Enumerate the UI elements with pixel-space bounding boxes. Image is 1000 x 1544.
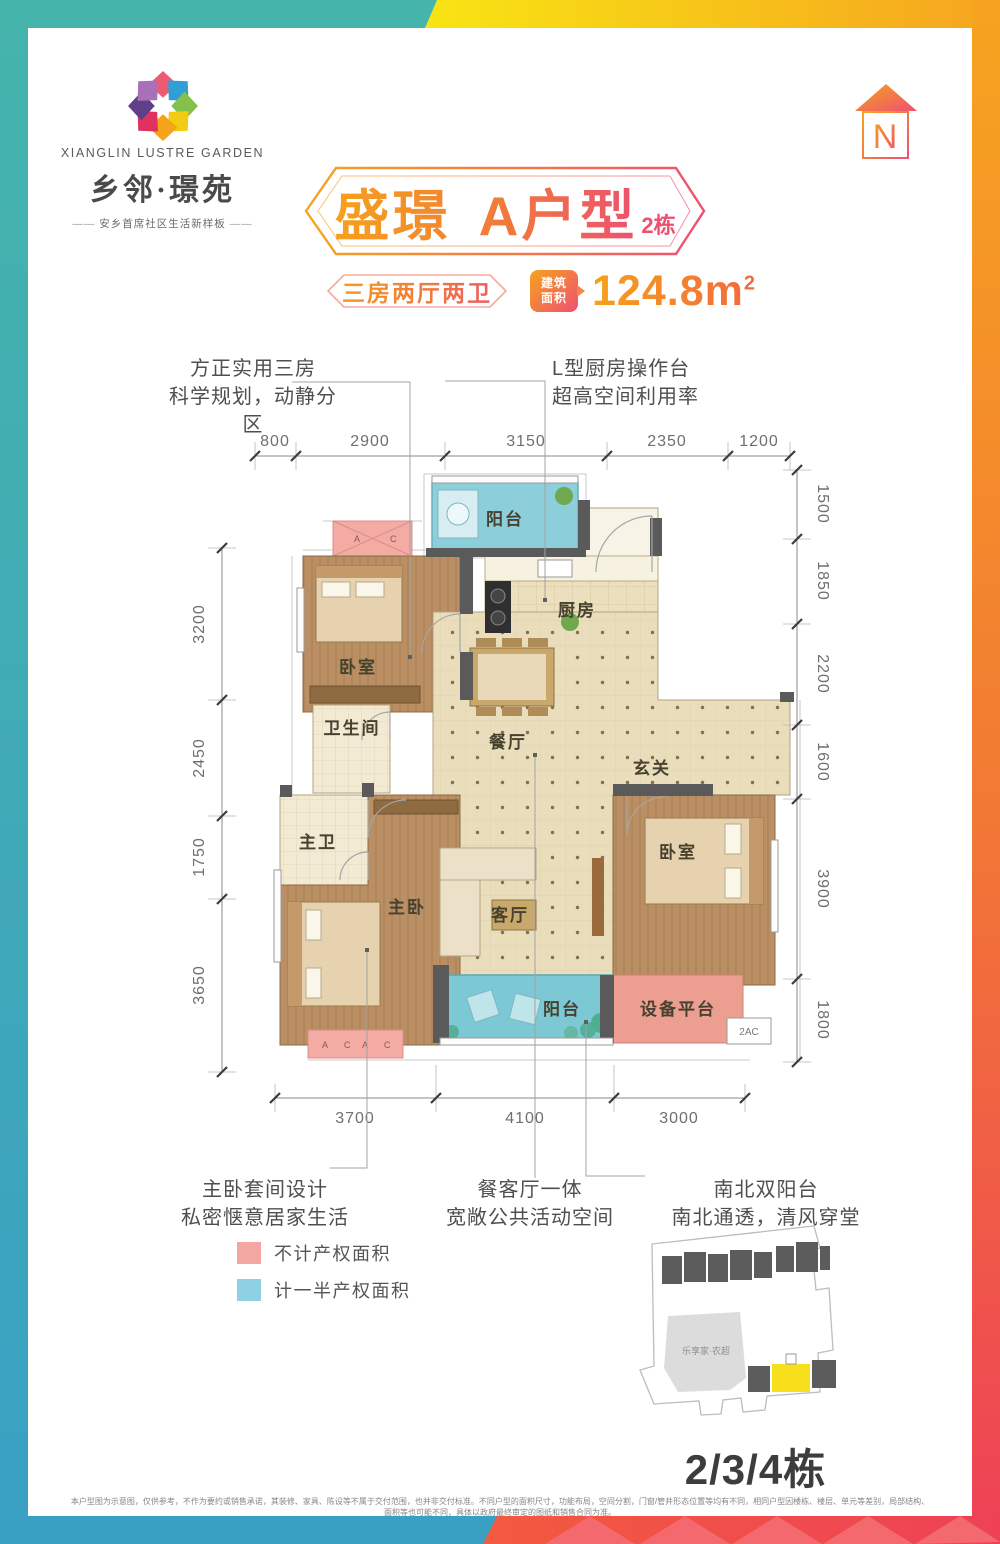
label-equipment: 设备平台 [640, 999, 716, 1019]
svg-text:C: C [390, 534, 397, 544]
layout-spec-pill: 三房两厅两卫 [322, 271, 512, 311]
label-dining: 餐厅 [489, 732, 527, 752]
svg-text:2AC: 2AC [739, 1027, 758, 1038]
floorplan-poster: XIANGLIN LUSTRE GARDEN 乡邻·璟苑 —— 安乡首席社区生活… [0, 0, 1000, 1544]
dim-left: 3200 2450 1750 3650 [191, 543, 236, 1077]
site-caption: 2/3/4栋 [628, 1436, 883, 1497]
svg-text:C: C [344, 1040, 351, 1050]
svg-text:1500: 1500 [814, 484, 831, 524]
legend-item-half-property: 计一半产权面积 [237, 1277, 411, 1303]
brand-tagline: —— 安乡首席社区生活新样板 —— [55, 216, 270, 231]
ac-platform-bottom: A C A C [308, 1030, 403, 1058]
svg-text:A: A [322, 1040, 328, 1050]
brand-logo-icon [127, 70, 199, 142]
building-tag: 2栋 [641, 208, 675, 240]
frame-left-bar [0, 0, 28, 1544]
label-living: 客厅 [490, 905, 529, 925]
north-arrow-icon: N [854, 84, 918, 164]
svg-text:3150: 3150 [506, 433, 546, 450]
label-bathroom: 卫生间 [324, 718, 381, 738]
legend-swatch-pink [237, 1242, 261, 1264]
svg-text:1750: 1750 [191, 837, 208, 877]
svg-text:3000: 3000 [659, 1110, 699, 1127]
label-entry: 玄关 [633, 758, 671, 778]
svg-text:2200: 2200 [814, 654, 831, 694]
spec-row: 三房两厅两卫 建筑 面积 124.8m2 [322, 268, 756, 314]
ac-box-right: 2AC [727, 1018, 771, 1044]
label-master-bedroom: 主卧 [388, 897, 426, 917]
svg-text:2350: 2350 [647, 433, 687, 450]
brand-block: XIANGLIN LUSTRE GARDEN 乡邻·璟苑 —— 安乡首席社区生活… [55, 70, 270, 231]
svg-text:1850: 1850 [814, 561, 831, 601]
label-kitchen: 厨房 [558, 600, 596, 620]
dim-bottom: 3700 4100 3000 [270, 1065, 750, 1127]
site-market-label: 乐享家·农超 [682, 1345, 730, 1356]
site-highlight-building [772, 1364, 810, 1392]
svg-text:800: 800 [260, 433, 290, 450]
ac-platform-top: A C [333, 521, 412, 556]
frame-right-bar [972, 0, 1000, 1544]
svg-text:3900: 3900 [814, 869, 831, 909]
disclaimer-text: 本户型图为示意图，仅供参考，不作为要约或销售承诺，其装修、家具、陈设等不属于交付… [70, 1496, 930, 1518]
layout-spec: 三房两厅两卫 [322, 271, 512, 311]
legend: 不计产权面积 计一半产权面积 [237, 1240, 411, 1314]
svg-text:C: C [384, 1040, 391, 1050]
svg-text:2450: 2450 [191, 738, 208, 778]
area-badge: 建筑 面积 [530, 270, 578, 312]
area-value: 124.8m2 [592, 267, 756, 316]
title-banner: 盛璟 A户型 2栋 [298, 160, 712, 262]
svg-text:1600: 1600 [814, 742, 831, 782]
svg-text:2900: 2900 [350, 433, 390, 450]
svg-text:1200: 1200 [739, 433, 779, 450]
svg-text:A: A [354, 534, 360, 544]
frame-top-bar [0, 0, 1000, 28]
dim-top: 800 2900 3150 2350 1200 [250, 433, 795, 470]
svg-text:4100: 4100 [505, 1110, 545, 1127]
label-balcony-top: 阳台 [486, 509, 524, 529]
legend-swatch-blue [237, 1279, 261, 1301]
legend-item-nonproperty: 不计产权面积 [237, 1240, 411, 1266]
north-label: N [873, 118, 898, 156]
brand-name-cn: 乡邻·璟苑 [55, 165, 270, 209]
label-bedroom-top: 卧室 [339, 657, 377, 677]
frame-bottom-bar [0, 1516, 1000, 1544]
site-map: 乐享家·农超 [618, 1220, 918, 1438]
brand-name-en: XIANGLIN LUSTRE GARDEN [55, 146, 270, 160]
svg-text:3700: 3700 [335, 1110, 375, 1127]
label-master-bath: 主卫 [299, 832, 337, 852]
svg-text:1800: 1800 [814, 1000, 831, 1040]
svg-text:3200: 3200 [191, 604, 208, 644]
label-balcony-bottom: 阳台 [543, 999, 581, 1019]
label-bedroom-right: 卧室 [659, 842, 697, 862]
floor-plan: A C A C A C 2AC [140, 370, 880, 1210]
svg-text:3650: 3650 [191, 965, 208, 1005]
page-title: 盛璟 A户型 [334, 171, 637, 251]
